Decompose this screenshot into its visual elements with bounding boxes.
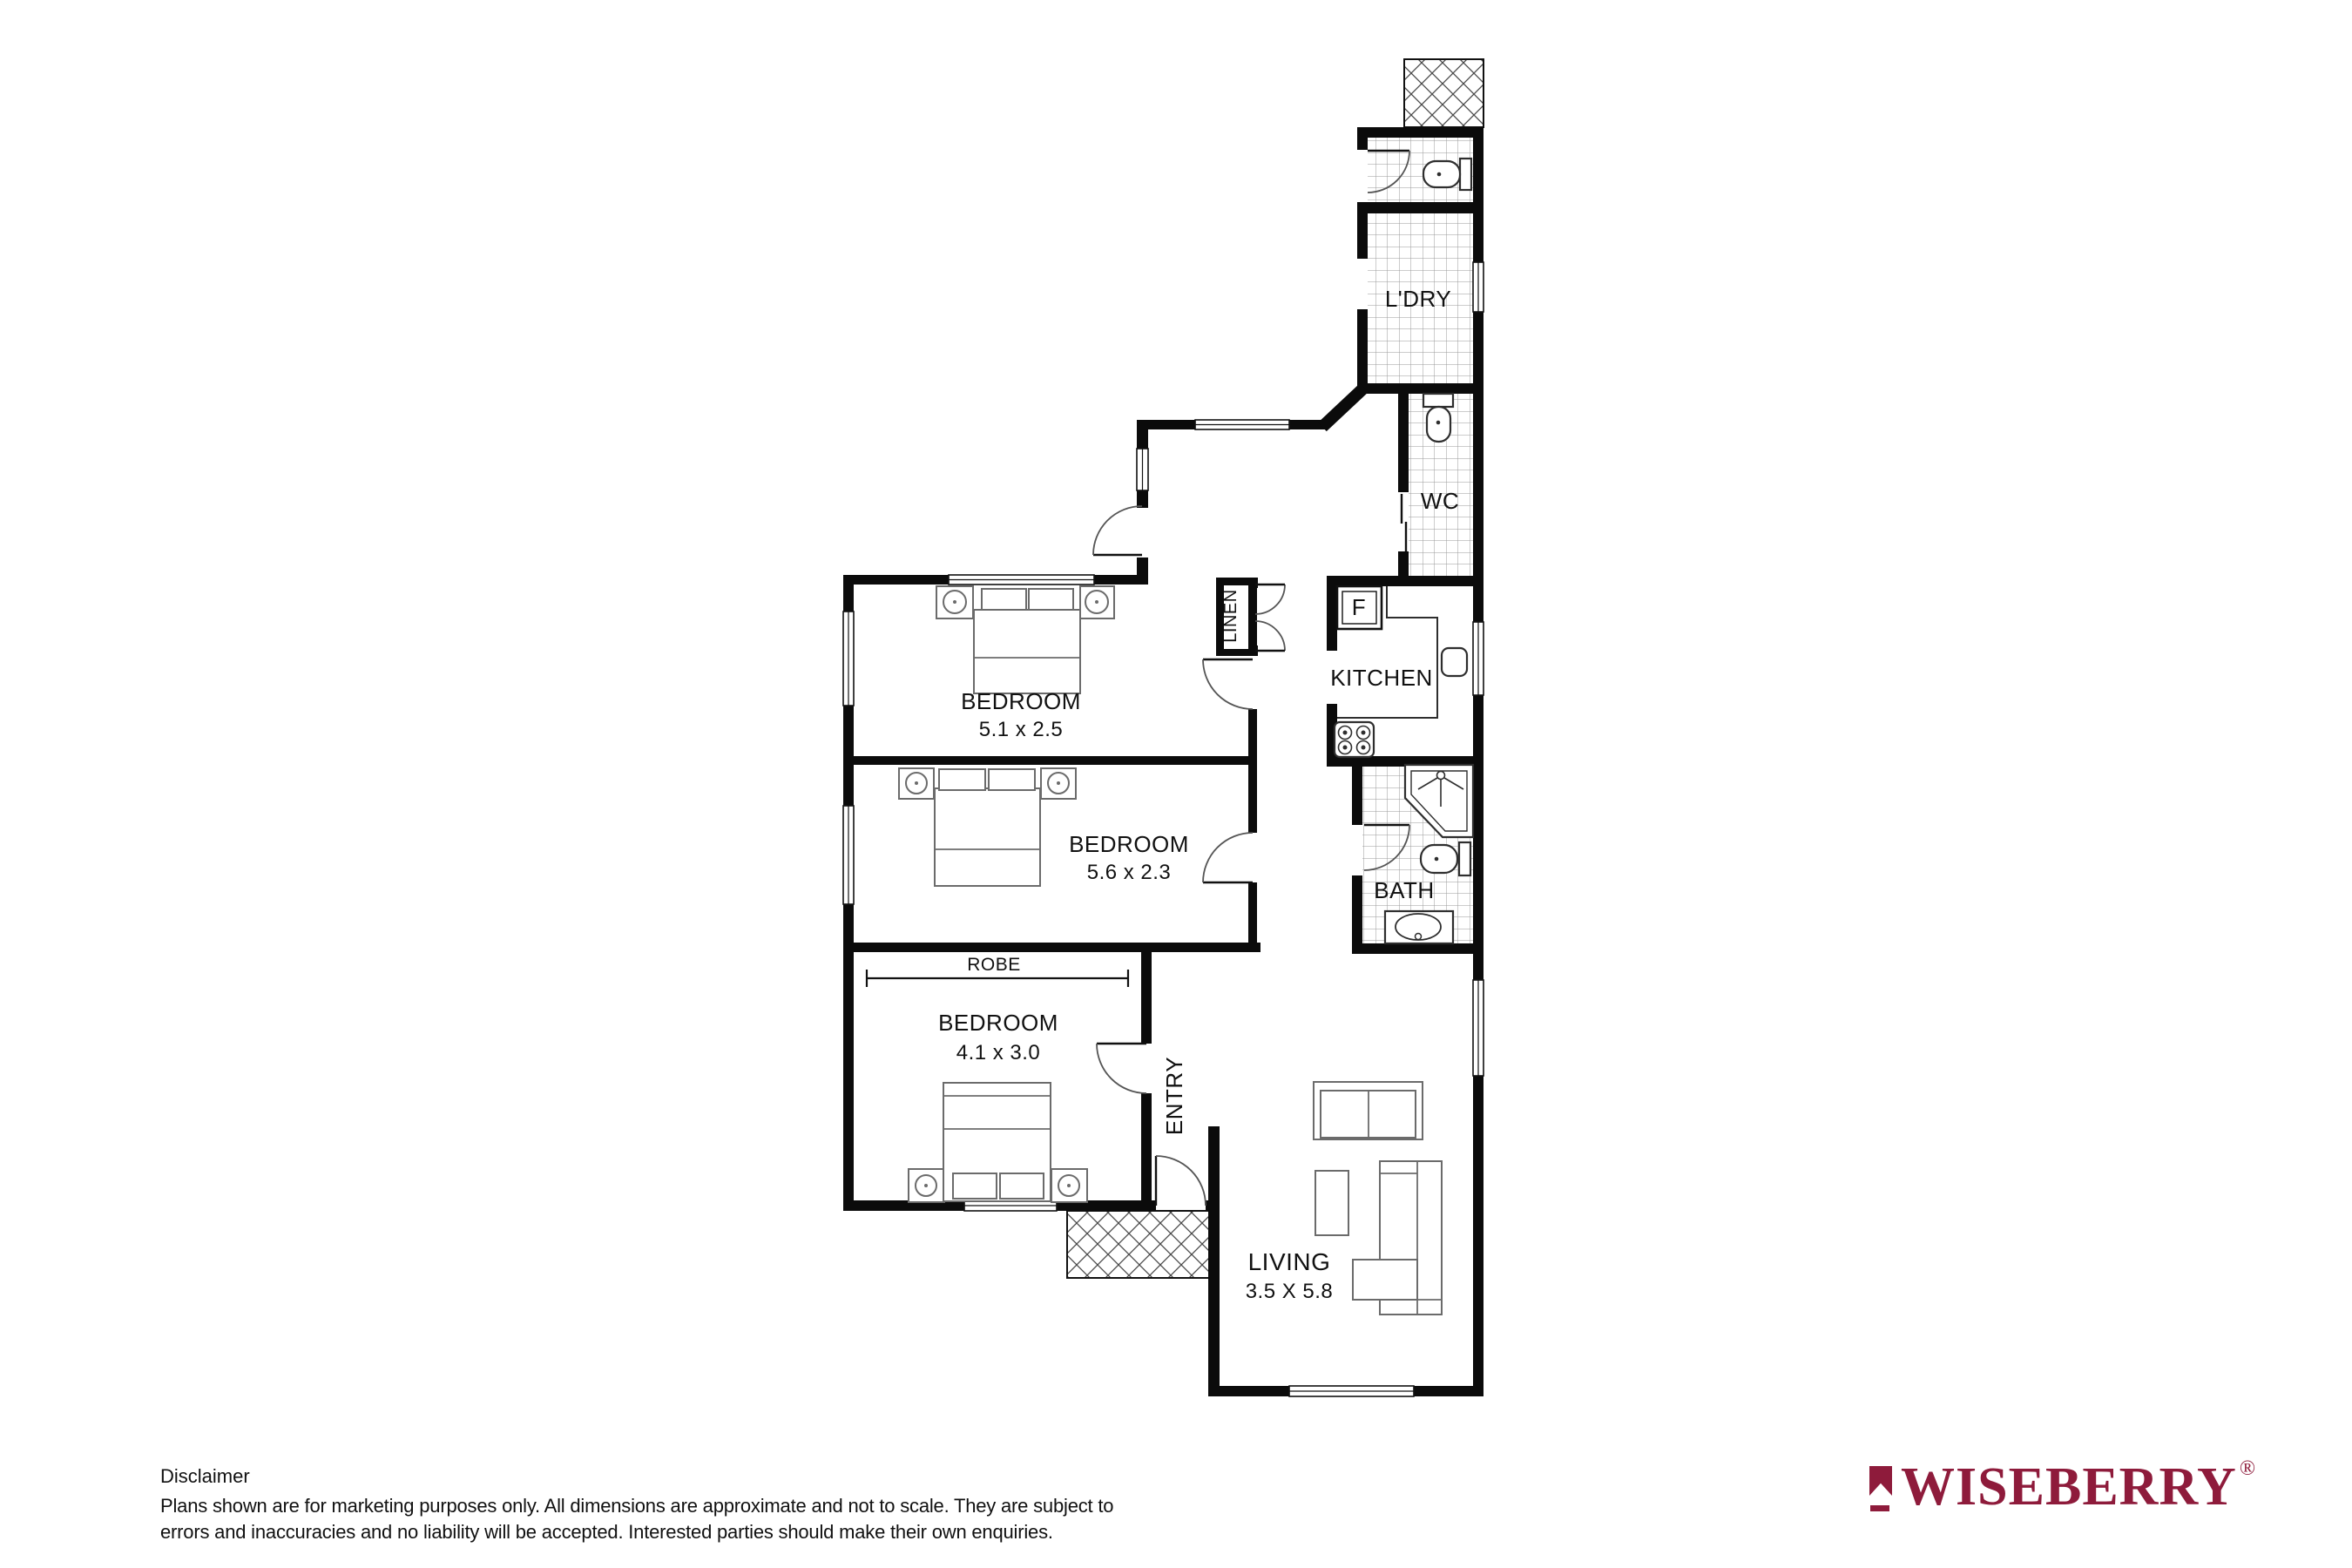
label-kitchen: KITCHEN	[1330, 665, 1433, 691]
window-hall-top	[1195, 420, 1289, 429]
wall-bed1-bed2-divider	[843, 756, 1257, 765]
disclaimer: Disclaimer Plans shown are for marketing…	[160, 1465, 1113, 1545]
kitchen-sink-icon	[1442, 648, 1467, 676]
door-bedroom3	[1097, 1044, 1146, 1093]
label-bedroom2: BEDROOM	[1069, 831, 1189, 857]
disclaimer-title: Disclaimer	[160, 1465, 1113, 1488]
wall-col-left-2	[1357, 213, 1368, 259]
window-bed1-left	[843, 612, 854, 706]
window-dining-right	[1473, 980, 1484, 1076]
floorplan-page: L'DRY WC KITCHEN F BATH BEDROOM 5.1 x 2.…	[0, 0, 2352, 1568]
door-wing-exterior	[1093, 506, 1142, 555]
wall-living-left	[1208, 1126, 1220, 1396]
wall-kitchen-left-1	[1327, 586, 1337, 651]
wall-linen-stub-top	[1252, 578, 1258, 588]
floor-plan: L'DRY WC KITCHEN F BATH BEDROOM 5.1 x 2.…	[0, 0, 2352, 1568]
toilet-rear-icon	[1423, 159, 1471, 190]
wall-diagonal	[1322, 388, 1364, 427]
wall-ldry-wc-divider	[1357, 383, 1484, 394]
door-bedroom1	[1203, 659, 1253, 709]
wall-toilet-top	[1357, 127, 1484, 138]
window-living-bottom	[1289, 1386, 1414, 1396]
disclaimer-line1: Plans shown are for marketing purposes o…	[160, 1493, 1113, 1519]
rear-porch	[1404, 59, 1484, 127]
label-entry: ENTRY	[1161, 1057, 1187, 1135]
door-wc-slider	[1402, 494, 1406, 551]
bed2	[899, 768, 1076, 886]
door-front-entry	[1156, 1156, 1206, 1206]
wall-kitchen-top	[1327, 576, 1484, 586]
brand-name: WISEBERRY	[1901, 1462, 2237, 1512]
bed3	[909, 1083, 1087, 1202]
door-linen-bifold	[1255, 585, 1285, 651]
tv-unit	[1314, 1082, 1423, 1139]
window-bed2-left	[843, 806, 854, 904]
wall-bath-left-1	[1352, 767, 1362, 825]
wall-beds-right-3	[1248, 882, 1257, 943]
toilet-wc-icon	[1423, 394, 1453, 442]
wall-wc-left-2	[1398, 551, 1409, 576]
wall-bath-left-2	[1352, 875, 1362, 954]
wall-wc-left-1	[1398, 394, 1409, 492]
label-living: LIVING	[1248, 1248, 1331, 1275]
entry-porch	[1067, 1211, 1211, 1278]
disclaimer-line2: errors and inaccuracies and no liability…	[160, 1519, 1113, 1545]
wall-bath-bottom	[1352, 943, 1484, 954]
wall-toilet-ldry-divider	[1357, 202, 1473, 213]
label-fridge: F	[1352, 594, 1366, 620]
label-bedroom3: BEDROOM	[938, 1010, 1058, 1036]
wall-bed2-bed3-divider	[843, 943, 1260, 952]
door-bedroom2	[1203, 833, 1253, 882]
label-robe: ROBE	[967, 955, 1021, 975]
wall-bed3-right-2	[1141, 1093, 1152, 1211]
vanity-icon	[1385, 911, 1453, 943]
wall-wing-left-1	[1137, 420, 1148, 449]
bed1	[936, 586, 1114, 693]
brand-logo: WISEBERRY ®	[1869, 1462, 2255, 1517]
wall-beds-right-2	[1248, 709, 1257, 833]
window-laundry-right	[1473, 262, 1484, 312]
sofa	[1353, 1161, 1442, 1315]
toilet-bath-icon	[1421, 842, 1470, 875]
dims-bedroom2: 5.6 x 2.3	[1087, 861, 1172, 884]
wiseberry-flag-icon	[1869, 1466, 1892, 1517]
label-laundry: L'DRY	[1385, 286, 1451, 312]
wall-linen-top	[1216, 578, 1257, 585]
dims-bedroom1: 5.1 x 2.5	[979, 718, 1064, 741]
window-kitchen-right	[1473, 622, 1484, 695]
dims-bedroom3: 4.1 x 3.0	[956, 1041, 1041, 1064]
label-bedroom1: BEDROOM	[961, 688, 1081, 714]
window-wing-left	[1137, 449, 1148, 490]
dims-living: 3.5 X 5.8	[1246, 1280, 1334, 1303]
stove-icon	[1335, 722, 1374, 757]
wall-bed3-right-1	[1141, 952, 1152, 1044]
window-bed1-top	[949, 575, 1094, 585]
wall-col-left-1	[1357, 138, 1368, 150]
label-bath: BATH	[1374, 877, 1434, 903]
wall-wing-left-2	[1137, 490, 1148, 508]
wall-col-left-3	[1357, 309, 1368, 383]
label-wc: WC	[1421, 488, 1459, 514]
coffee-table	[1315, 1171, 1348, 1235]
label-linen: LINEN	[1221, 589, 1240, 642]
wall-linen-bottom	[1216, 649, 1257, 656]
registered-mark: ®	[2240, 1458, 2255, 1479]
